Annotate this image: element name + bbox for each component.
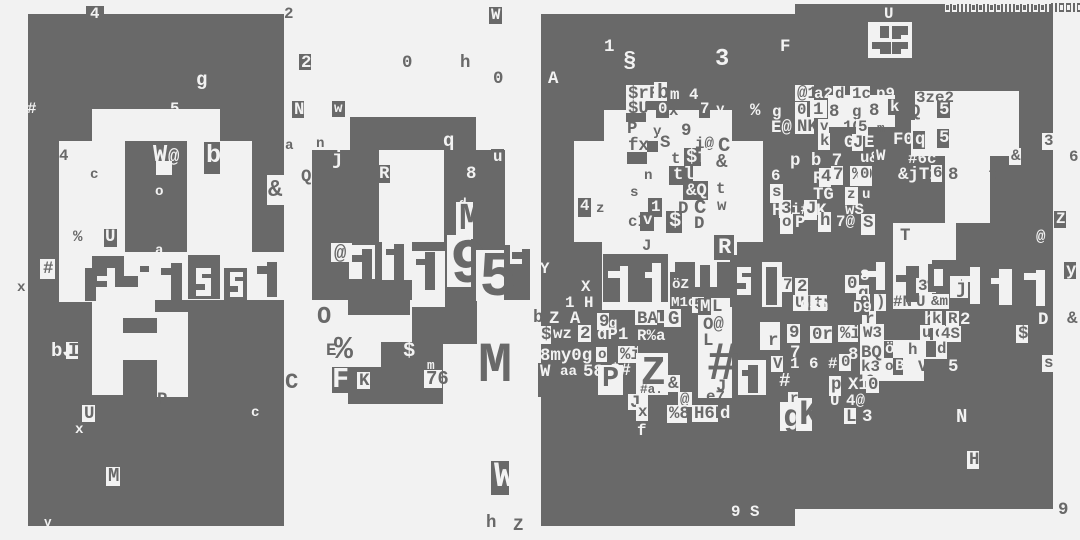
svg-text:3: 3	[1044, 132, 1053, 150]
svg-text:P: P	[795, 214, 805, 233]
svg-text:v: v	[643, 211, 653, 229]
svg-text:K: K	[359, 372, 370, 391]
svg-text:@: @	[168, 146, 180, 168]
svg-text:w: w	[334, 101, 343, 117]
svg-text:R: R	[379, 165, 390, 184]
svg-text:k: k	[820, 132, 830, 150]
svg-text:h: h	[460, 54, 470, 73]
svg-text:S: S	[660, 134, 670, 153]
svg-text:g: g	[196, 69, 207, 91]
svg-text:f: f	[637, 422, 646, 440]
svg-text:&: &	[1067, 310, 1078, 329]
svg-text:&: &	[1011, 147, 1021, 165]
svg-text:x: x	[638, 403, 648, 421]
svg-text:Z: Z	[513, 517, 523, 536]
svg-text:e7: e7	[706, 388, 725, 406]
svg-text:&: &	[716, 151, 728, 173]
svg-text:m: m	[877, 121, 885, 136]
svg-text:fx: fx	[628, 137, 649, 156]
svg-text:#: #	[779, 370, 790, 392]
svg-text:ö: ö	[885, 340, 894, 358]
svg-text:C: C	[285, 370, 298, 395]
svg-text:o: o	[782, 213, 791, 231]
svg-text:h: h	[908, 341, 917, 359]
svg-text:5: 5	[939, 129, 949, 148]
svg-text:U: U	[105, 228, 115, 247]
svg-text:t: t	[716, 180, 725, 198]
svg-text:D: D	[1038, 311, 1048, 330]
svg-text:d: d	[937, 340, 946, 358]
svg-text:x: x	[75, 422, 84, 438]
svg-text:0r: 0r	[812, 326, 833, 345]
svg-text:0#n: 0#n	[800, 297, 828, 315]
svg-text:%8: %8	[669, 405, 690, 424]
svg-text:7: 7	[700, 100, 709, 118]
svg-text:5: 5	[170, 100, 179, 118]
svg-text:@: @	[1036, 228, 1046, 246]
svg-text:Q: Q	[301, 168, 311, 187]
svg-text:j: j	[332, 148, 343, 170]
svg-text:s: s	[1044, 354, 1053, 372]
svg-text:h: h	[820, 212, 830, 231]
svg-text:wz: wz	[553, 325, 572, 343]
svg-text:#N: #N	[893, 293, 912, 311]
svg-text:I: I	[68, 340, 79, 362]
svg-text:NK: NK	[797, 118, 818, 137]
svg-text:@: @	[334, 243, 346, 266]
svg-text:Y: Y	[540, 260, 550, 278]
svg-text:7: 7	[783, 276, 792, 294]
svg-text:G: G	[668, 308, 679, 330]
svg-text:0: 0	[847, 275, 857, 294]
svg-text:0: 0	[841, 353, 850, 371]
svg-text:#: #	[828, 355, 838, 373]
svg-text:0: 0	[860, 165, 869, 183]
svg-text:W: W	[494, 458, 515, 497]
svg-text:q: q	[915, 131, 925, 150]
svg-text:$: $	[541, 326, 551, 345]
svg-text:Z: Z	[1056, 210, 1065, 228]
svg-text:u: u	[493, 148, 502, 166]
svg-text:W: W	[153, 142, 168, 169]
svg-text:u: u	[922, 324, 931, 342]
svg-text:4: 4	[580, 197, 590, 215]
svg-text:s: s	[772, 183, 781, 201]
svg-text:M: M	[700, 298, 710, 317]
svg-text:c: c	[251, 405, 260, 421]
svg-text:$f: $f	[686, 146, 709, 168]
svg-text:2: 2	[284, 5, 293, 23]
svg-text:#: #	[27, 100, 37, 118]
svg-text:%i: %i	[840, 325, 861, 344]
svg-text:V: V	[918, 358, 928, 376]
svg-text:%: %	[750, 102, 761, 121]
svg-text:T: T	[900, 227, 910, 246]
svg-text:4: 4	[59, 147, 69, 165]
svg-text:R: R	[718, 235, 732, 260]
svg-text:9 S: 9 S	[731, 503, 759, 521]
svg-text:R%a: R%a	[637, 327, 666, 345]
svg-text:d: d	[720, 405, 730, 424]
svg-text:0: 0	[493, 70, 503, 89]
svg-text:8: 8	[869, 102, 879, 121]
svg-text:o: o	[155, 184, 164, 200]
svg-text:k3: k3	[861, 358, 880, 376]
svg-text:1c: 1c	[852, 85, 871, 103]
svg-text:J: J	[806, 200, 816, 219]
svg-text:6: 6	[1069, 148, 1078, 166]
svg-text:n: n	[316, 136, 325, 152]
svg-text:t: t	[988, 166, 997, 184]
svg-text:U: U	[830, 392, 839, 410]
svg-text:q: q	[609, 316, 618, 332]
svg-text:o: o	[885, 359, 894, 375]
svg-text:5: 5	[948, 358, 958, 377]
svg-text:8: 8	[829, 103, 839, 122]
svg-text:J: J	[642, 237, 651, 255]
svg-text:0: 0	[868, 376, 878, 395]
svg-text:1 6: 1 6	[790, 355, 818, 373]
svg-text:8: 8	[948, 166, 958, 185]
svg-text:z: z	[596, 201, 605, 217]
svg-text:U: U	[916, 293, 925, 311]
svg-text:U: U	[84, 405, 94, 424]
svg-text:0: 0	[797, 101, 806, 119]
svg-text:v: v	[44, 515, 52, 530]
svg-text:y: y	[1066, 262, 1077, 281]
svg-text:L: L	[712, 298, 722, 317]
svg-text:§: §	[623, 49, 636, 74]
svg-text:x: x	[669, 102, 679, 120]
svg-text:2: 2	[580, 325, 590, 344]
svg-text:N: N	[294, 101, 304, 120]
svg-text:2: 2	[960, 311, 970, 330]
svg-text:D9: D9	[853, 299, 872, 317]
svg-text:k: k	[890, 98, 900, 116]
svg-text:#: #	[43, 260, 53, 279]
svg-text:3: 3	[715, 46, 729, 73]
svg-text:x: x	[17, 280, 26, 296]
svg-text:F: F	[332, 363, 349, 396]
svg-text:s: s	[630, 185, 639, 201]
svg-text:F: F	[780, 38, 790, 57]
svg-text:&: &	[668, 375, 679, 394]
svg-text:1: 1	[604, 38, 614, 57]
svg-text:o: o	[598, 347, 607, 363]
svg-text:0: 0	[402, 54, 412, 73]
svg-text:4: 4	[821, 168, 831, 187]
svg-text:y: y	[716, 102, 725, 118]
svg-text:E@: E@	[771, 119, 792, 138]
svg-text:W: W	[491, 6, 501, 24]
svg-text:&: &	[268, 177, 283, 204]
svg-text:2: 2	[301, 54, 311, 73]
svg-text:D: D	[694, 215, 704, 234]
svg-text:P: P	[602, 362, 619, 395]
svg-text:a: a	[155, 243, 164, 259]
svg-text:0: 0	[658, 100, 667, 118]
svg-text:H: H	[969, 451, 979, 470]
svg-text:$: $	[669, 210, 681, 233]
svg-text:U: U	[884, 5, 893, 23]
svg-text:7@: 7@	[836, 213, 855, 231]
svg-text:q: q	[443, 130, 454, 152]
svg-text:W: W	[540, 363, 551, 382]
svg-text:W3: W3	[863, 324, 882, 342]
svg-text:w: w	[717, 197, 727, 215]
svg-text:$: $	[403, 340, 415, 363]
svg-text:S: S	[863, 214, 873, 233]
svg-text:$: $	[1018, 325, 1028, 344]
svg-text:3: 3	[862, 408, 872, 427]
svg-text:M: M	[108, 465, 119, 487]
svg-text:Q: Q	[910, 103, 920, 122]
svg-text:5: 5	[939, 101, 949, 120]
svg-text:B: B	[895, 357, 905, 375]
svg-text:M: M	[478, 335, 512, 399]
svg-text:h: h	[486, 514, 496, 533]
svg-text:L: L	[846, 408, 856, 427]
svg-text:W: W	[876, 147, 886, 165]
svg-text:a: a	[285, 138, 294, 154]
svg-text:F0: F0	[893, 131, 914, 150]
svg-text:P: P	[157, 391, 167, 410]
svg-text:b: b	[206, 141, 221, 170]
svg-text:r: r	[768, 332, 778, 351]
svg-text:6: 6	[933, 164, 942, 182]
svg-text:c: c	[90, 167, 99, 183]
svg-text:76: 76	[426, 368, 449, 390]
svg-text:9: 9	[681, 122, 691, 141]
svg-text:öZ: öZ	[672, 277, 689, 293]
svg-text:9: 9	[1058, 501, 1068, 520]
svg-text:): )	[876, 293, 885, 311]
svg-text:n: n	[644, 168, 653, 184]
svg-text:9: 9	[789, 324, 799, 343]
svg-text:%: %	[73, 228, 83, 246]
svg-text:d: d	[835, 85, 844, 103]
svg-text:9: 9	[599, 313, 609, 332]
svg-text:A: A	[548, 70, 559, 89]
svg-text:K: K	[799, 396, 820, 435]
svg-text:aa: aa	[560, 364, 578, 380]
svg-text:8: 8	[466, 165, 476, 184]
svg-text:4: 4	[90, 5, 100, 23]
svg-text:&m: &m	[931, 294, 948, 310]
svg-text:O: O	[317, 304, 331, 331]
svg-text:7: 7	[833, 166, 843, 185]
svg-text:N: N	[956, 406, 967, 428]
